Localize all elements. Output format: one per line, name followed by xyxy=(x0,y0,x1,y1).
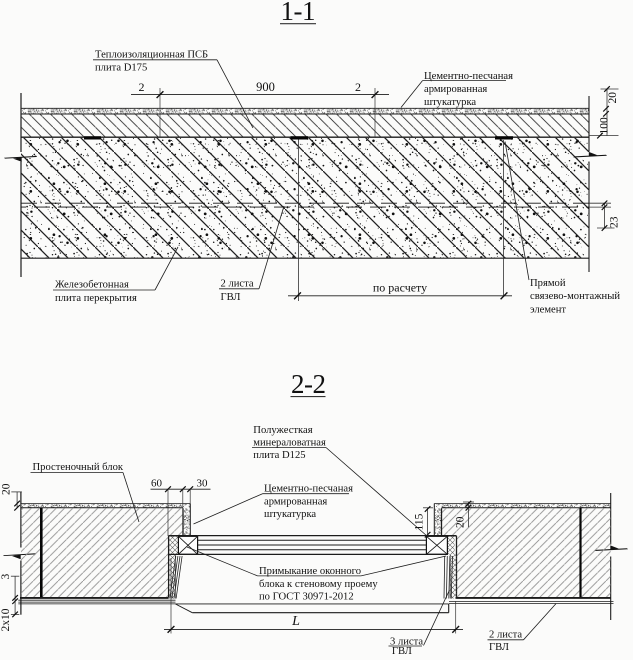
svg-text:3: 3 xyxy=(0,574,12,580)
svg-text:Цементно-песчаная: Цементно-песчаная xyxy=(424,71,513,82)
svg-text:2: 2 xyxy=(355,80,361,94)
svg-text:Цементно-песчаная: Цементно-песчаная xyxy=(264,484,353,495)
svg-text:2-2: 2-2 xyxy=(291,369,326,399)
svg-text:L: L xyxy=(291,614,300,629)
svg-text:2: 2 xyxy=(139,80,145,94)
svg-text:ГВЛ: ГВЛ xyxy=(392,646,412,657)
svg-text:900: 900 xyxy=(256,80,275,94)
svg-text:элемент: элемент xyxy=(530,305,566,316)
svg-text:армированная: армированная xyxy=(264,496,327,507)
svg-text:1-1: 1-1 xyxy=(281,0,316,26)
svg-text:30: 30 xyxy=(197,477,209,489)
svg-text:плита D125: плита D125 xyxy=(253,450,305,461)
svg-text:штукатурка: штукатурка xyxy=(264,509,316,520)
svg-text:20: 20 xyxy=(607,92,619,104)
svg-text:20: 20 xyxy=(1,483,13,495)
svg-text:Теплоизоляционная ПСБ: Теплоизоляционная ПСБ xyxy=(95,49,208,60)
svg-text:2 листа: 2 листа xyxy=(221,279,254,290)
svg-text:ГВЛ: ГВЛ xyxy=(221,292,241,303)
svg-text:2 листа: 2 листа xyxy=(489,630,522,641)
svg-text:Полужесткая: Полужесткая xyxy=(253,425,312,436)
svg-text:20: 20 xyxy=(455,516,467,528)
svg-text:армированная: армированная xyxy=(424,84,487,95)
svg-text:плита D175: плита D175 xyxy=(95,63,147,74)
svg-text:связево-монтажный: связево-монтажный xyxy=(530,291,620,302)
svg-text:плита перекрытия: плита перекрытия xyxy=(55,293,137,304)
svg-text:2х10: 2х10 xyxy=(0,608,12,631)
svg-text:блока к стеновому проему: блока к стеновому проему xyxy=(259,579,378,590)
svg-text:по ГОСТ 30971-2012: по ГОСТ 30971-2012 xyxy=(259,592,354,603)
svg-text:Железобетонная: Железобетонная xyxy=(55,280,129,291)
svg-text:минераловатная: минераловатная xyxy=(253,438,326,449)
svg-text:Прямой: Прямой xyxy=(530,278,566,289)
svg-text:штукатурка: штукатурка xyxy=(424,97,476,108)
svg-text:Простеночный блок: Простеночный блок xyxy=(33,462,124,473)
svg-text:115: 115 xyxy=(414,513,426,530)
svg-text:по расчету: по расчету xyxy=(373,280,427,294)
svg-text:23: 23 xyxy=(609,216,621,228)
svg-text:60: 60 xyxy=(151,477,163,489)
svg-text:100: 100 xyxy=(599,117,611,135)
svg-text:ГВЛ: ГВЛ xyxy=(489,642,509,653)
svg-text:Примыкание оконного: Примыкание оконного xyxy=(259,566,361,577)
